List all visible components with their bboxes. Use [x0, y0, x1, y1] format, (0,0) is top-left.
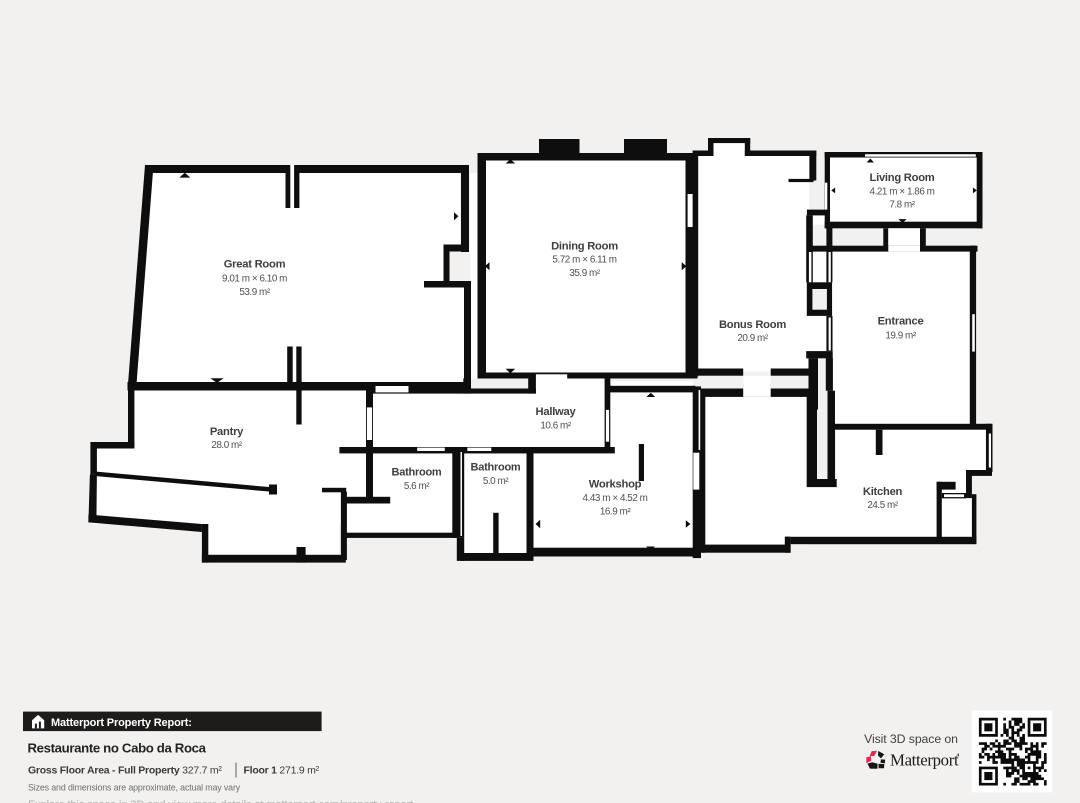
svg-text:24.5 m²: 24.5 m²: [867, 500, 898, 511]
svg-text:5.72 m × 6.11 m: 5.72 m × 6.11 m: [552, 255, 616, 266]
svg-text:4.21 m × 1.86 m: 4.21 m × 1.86 m: [870, 187, 935, 198]
svg-text:7.8 m²: 7.8 m²: [889, 200, 915, 211]
svg-text:Bathroom: Bathroom: [471, 462, 521, 474]
svg-text:Sizes and dimensions are appro: Sizes and dimensions are approximate, ac…: [28, 783, 241, 793]
svg-text:Bonus Room: Bonus Room: [719, 319, 786, 331]
svg-text:28.0 m²: 28.0 m²: [211, 440, 242, 451]
svg-text:5.6 m²: 5.6 m²: [404, 481, 430, 492]
svg-text:53.9 m²: 53.9 m²: [239, 287, 270, 298]
svg-text:5.0 m²: 5.0 m²: [483, 476, 509, 487]
svg-text:4.43 m × 4.52 m: 4.43 m × 4.52 m: [583, 493, 648, 504]
svg-text:Hallway: Hallway: [536, 406, 577, 418]
svg-text:Matterport: Matterport: [890, 751, 959, 770]
svg-text:Living Room: Living Room: [870, 172, 935, 184]
svg-text:Explore this space in 3D and v: Explore this space in 3D and view more d…: [28, 799, 413, 803]
svg-text:Workshop: Workshop: [589, 479, 642, 491]
svg-text:Gross Floor Area - Full Proper: Gross Floor Area - Full Property 327.7 m…: [28, 765, 222, 777]
svg-text:Matterport Property Report:: Matterport Property Report:: [51, 717, 192, 729]
svg-text:35.9 m²: 35.9 m²: [569, 268, 600, 279]
svg-text:10.6 m²: 10.6 m²: [540, 421, 571, 432]
svg-text:Pantry: Pantry: [210, 426, 244, 438]
svg-text:19.9 m²: 19.9 m²: [885, 331, 916, 342]
svg-text:16.9 m²: 16.9 m²: [600, 507, 631, 518]
svg-text:Dining Room: Dining Room: [551, 241, 618, 253]
svg-text:Floor 1 271.9 m²: Floor 1 271.9 m²: [244, 765, 320, 777]
svg-text:Visit 3D space on: Visit 3D space on: [864, 732, 958, 746]
svg-text:Bathroom: Bathroom: [392, 467, 442, 479]
svg-text:Entrance: Entrance: [878, 316, 924, 328]
svg-text:20.9 m²: 20.9 m²: [737, 333, 768, 344]
svg-text:9.01 m × 6.10 m: 9.01 m × 6.10 m: [222, 274, 287, 285]
svg-text:Great Room: Great Room: [224, 259, 286, 271]
svg-text:Kitchen: Kitchen: [863, 486, 903, 498]
svg-text:Restaurante no Cabo da Roca: Restaurante no Cabo da Roca: [28, 741, 207, 756]
